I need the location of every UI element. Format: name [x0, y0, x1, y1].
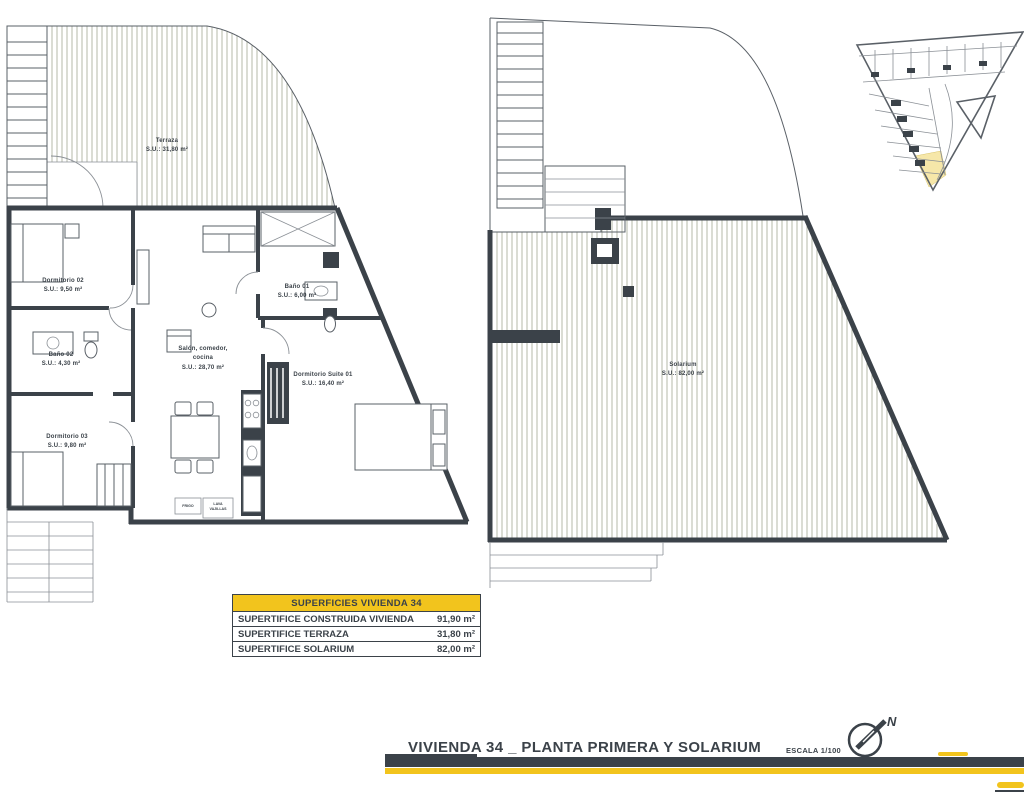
row-label: SUPERTIFICE CONSTRUIDA VIVIENDA [238, 614, 414, 625]
table-row: SUPERTIFICE CONSTRUIDA VIVIENDA 91,90 m² [233, 611, 480, 626]
title-bar-yellow [385, 768, 1024, 774]
row-value: 82,00 m² [437, 644, 475, 655]
corner-logo-dark [995, 790, 1024, 792]
room-area-bano-01: S.U.: 6,00 m² [278, 292, 317, 299]
terraza-area [47, 26, 335, 208]
room-label-salon-2: cocina [193, 355, 214, 361]
fridge-label: FRIGO [182, 504, 194, 508]
surfaces-table-header: SUPERFICIES VIVIENDA 34 [233, 595, 480, 611]
north-label: N [887, 714, 897, 729]
kitchen-counter [241, 390, 263, 516]
room-area-suite-01: S.U.: 16,40 m² [302, 380, 344, 387]
corner-logo-yellow [997, 782, 1024, 788]
site-pool [957, 96, 995, 138]
surfaces-table: SUPERFICIES VIVIENDA 34 SUPERTIFICE CONS… [232, 594, 481, 657]
room-area-solarium: S.U.: 82,00 m² [662, 370, 704, 377]
row-value: 31,80 m² [437, 629, 475, 640]
appliance-labels: FRIGO LAVA VAJILLAS [175, 498, 233, 518]
row-label: SUPERTIFICE TERRAZA [238, 629, 349, 640]
room-label-salon-1: Salón, comedor, [178, 346, 227, 352]
table-row: SUPERTIFICE SOLARIUM 82,00 m² [233, 641, 480, 656]
site-plan-minimap [845, 10, 1024, 200]
solarium-stairs [497, 22, 543, 208]
first-floor-plan: FRIGO LAVA VAJILLAS Terraza S.U.: [5, 12, 475, 607]
yellow-accent-dash [938, 752, 968, 756]
title-bar-dark [385, 757, 1024, 767]
dishwasher-label-line2: VAJILLAS [209, 507, 227, 511]
lower-steps [7, 508, 93, 602]
row-value: 91,90 m² [437, 614, 475, 625]
suite-furniture [267, 362, 447, 470]
room-label-bano-02: Baño 02 [49, 352, 74, 358]
row-label: SUPERTIFICE SOLARIUM [238, 644, 354, 655]
room-label-solarium: Solarium [669, 362, 696, 368]
table-row: SUPERTIFICE TERRAZA 31,80 m² [233, 626, 480, 641]
room-area-terraza: S.U.: 31,80 m² [146, 146, 188, 153]
bed-dormitorio-02 [11, 224, 79, 282]
room-label-terraza: Terraza [156, 138, 179, 144]
room-area-dormitorio-03: S.U.: 9,80 m² [48, 442, 87, 449]
scale-label: ESCALA 1/100 [786, 746, 841, 755]
room-label-suite-01: Dormitorio Suite 01 [293, 372, 353, 378]
exterior-stairs [7, 26, 47, 208]
bathroom-01-fixtures [261, 212, 339, 332]
solarium-lower-steps [490, 542, 663, 588]
room-label-dormitorio-03: Dormitorio 03 [46, 434, 88, 440]
room-label-dormitorio-02: Dormitorio 02 [42, 278, 84, 284]
bed-dormitorio-03 [11, 452, 131, 506]
room-area-dormitorio-02: S.U.: 9,50 m² [44, 286, 83, 293]
room-label-bano-01: Baño 01 [285, 284, 310, 290]
site-top-units [859, 42, 1017, 82]
room-area-salon: S.U.: 28,70 m² [182, 364, 224, 371]
outer-boundary [490, 18, 803, 232]
dishwasher-label-line1: LAVA [213, 502, 223, 506]
room-area-bano-02: S.U.: 4,30 m² [42, 360, 81, 367]
